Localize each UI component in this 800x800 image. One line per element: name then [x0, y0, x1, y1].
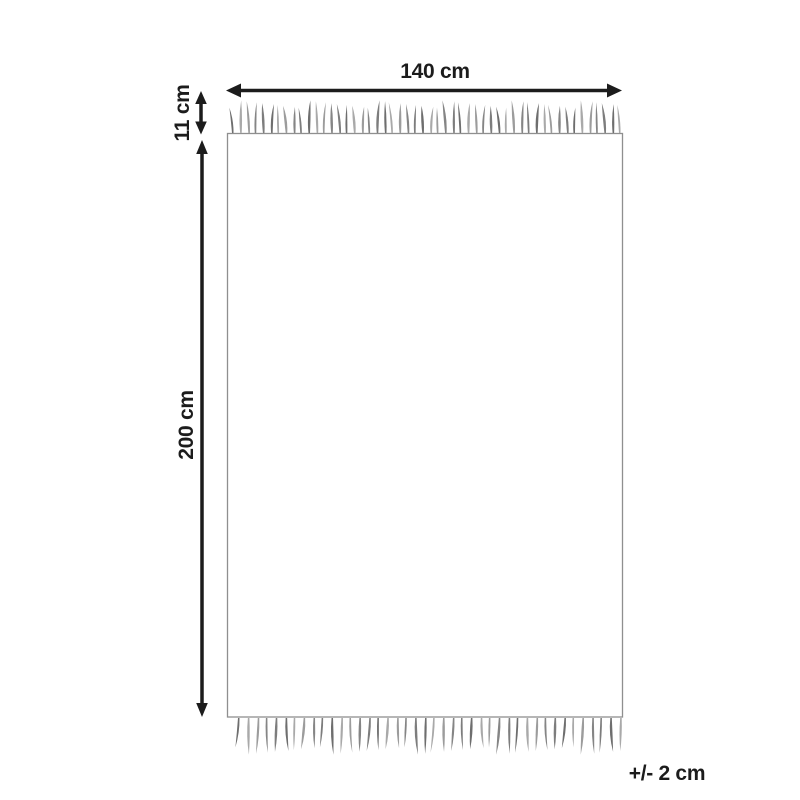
- tassel-strand: [431, 718, 435, 753]
- tolerance-label: +/- 2 cm: [611, 762, 723, 786]
- tassel-strand: [458, 102, 461, 133]
- tassel-strand: [415, 718, 418, 755]
- tassel-strand: [349, 718, 352, 753]
- tassel-strand: [581, 718, 584, 755]
- tassel-strand: [536, 718, 539, 751]
- tassel-strand: [521, 101, 523, 133]
- tassel-strand: [404, 718, 406, 747]
- tassel-strand: [247, 718, 250, 755]
- top-fringe: [229, 100, 620, 133]
- fringe-dimension-label: 11 cm: [171, 85, 195, 142]
- tassel-strand: [589, 101, 592, 133]
- tassel-strand: [308, 100, 311, 133]
- tassel-strand: [527, 102, 529, 133]
- tassel-strand: [451, 718, 454, 751]
- tassel-strand: [612, 104, 614, 133]
- tassel-strand: [461, 718, 463, 750]
- tassel-strand: [367, 718, 371, 751]
- tassel-strand: [424, 718, 426, 754]
- tassel-strand: [368, 108, 370, 133]
- tassel-strand: [565, 107, 568, 133]
- arrowhead-down-icon: [195, 122, 207, 135]
- tassel-strand: [397, 718, 399, 748]
- tassel-strand: [515, 718, 518, 753]
- tassel-strand: [283, 106, 287, 133]
- tassel-strand: [467, 103, 470, 133]
- tassel-strand: [235, 718, 239, 747]
- tassel-strand: [340, 718, 343, 754]
- tassel-strand: [496, 718, 500, 755]
- tassel-strand: [256, 718, 259, 754]
- arrowhead-right-icon: [607, 84, 622, 98]
- tassel-strand: [337, 104, 341, 133]
- tassel-strand: [399, 103, 402, 133]
- tassel-strand: [320, 718, 323, 747]
- tassel-strand: [421, 106, 424, 133]
- tassel-strand: [475, 104, 478, 133]
- rug-body: [228, 134, 623, 718]
- tassel-strand: [436, 108, 438, 133]
- tassel-strand: [386, 718, 389, 749]
- tassel-strand: [482, 105, 485, 133]
- tassel-strand: [293, 107, 295, 133]
- tassel-strand: [389, 102, 393, 133]
- tassel-strand: [316, 101, 319, 133]
- tassel-strand: [362, 107, 364, 133]
- tassel-strand: [526, 718, 529, 752]
- tassel-strand: [562, 718, 566, 748]
- tassel-strand: [442, 718, 445, 752]
- tassel-strand: [323, 102, 326, 133]
- tassel-strand: [406, 104, 409, 133]
- tassel-strand: [275, 718, 278, 752]
- arrowhead-up-icon: [196, 140, 208, 154]
- tassel-strand: [544, 718, 547, 750]
- arrowhead-down-icon: [196, 703, 208, 717]
- tassel-strand: [508, 718, 510, 754]
- tassel-strand: [558, 106, 561, 133]
- tassel-strand: [254, 102, 256, 133]
- tassel-strand: [345, 105, 347, 133]
- tassel-strand: [480, 718, 483, 748]
- tassel-strand: [247, 101, 250, 133]
- tassel-strand: [430, 107, 433, 133]
- tassel-strand: [581, 100, 584, 133]
- tassel-strand: [470, 718, 473, 749]
- fringe-dimension-arrow: [195, 91, 207, 135]
- tassel-strand: [377, 718, 379, 750]
- width-dimension-label: 140 cm: [355, 60, 515, 84]
- tassel-strand: [262, 103, 265, 133]
- tassel-strand: [301, 718, 305, 749]
- tassel-strand: [505, 108, 507, 133]
- tassel-strand: [596, 102, 598, 133]
- tassel-strand: [271, 104, 274, 133]
- arrowhead-up-icon: [195, 91, 207, 104]
- tassel-strand: [544, 104, 546, 133]
- tassel-strand: [496, 107, 500, 133]
- tassel-strand: [554, 718, 557, 749]
- tassel-strand: [600, 718, 602, 753]
- tassel-strand: [548, 105, 552, 133]
- tassel-strand: [331, 718, 334, 755]
- length-dimension-label: 200 cm: [175, 390, 199, 459]
- tassel-strand: [602, 103, 606, 133]
- rug-dimension-diagram: 140 cm 11 cm 200 cm +/- 2 cm: [0, 0, 800, 800]
- tassel-strand: [229, 108, 233, 133]
- tassel-strand: [453, 101, 455, 133]
- tassel-strand: [610, 718, 613, 752]
- tassel-strand: [572, 718, 574, 747]
- tassel-strand: [617, 105, 620, 133]
- tassel-strand: [414, 105, 416, 133]
- tassel-strand: [359, 718, 362, 752]
- tassel-strand: [239, 100, 242, 133]
- width-dimension-arrow: [226, 84, 622, 98]
- tassel-strand: [592, 718, 594, 754]
- diagram-graphics: [0, 0, 800, 800]
- tassel-strand: [313, 718, 315, 748]
- bottom-fringe: [235, 718, 621, 755]
- tassel-strand: [277, 105, 279, 133]
- tassel-strand: [330, 103, 333, 133]
- tassel-strand: [285, 718, 288, 751]
- tassel-strand: [488, 718, 490, 747]
- tassel-strand: [619, 718, 621, 751]
- tassel-strand: [266, 718, 268, 753]
- tassel-strand: [573, 108, 575, 133]
- tassel-strand: [490, 106, 493, 133]
- tassel-strand: [536, 103, 539, 133]
- tassel-strand: [376, 100, 379, 133]
- tassel-strand: [352, 106, 355, 133]
- tassel-strand: [512, 100, 515, 133]
- tassel-strand: [442, 100, 446, 133]
- tassel-strand: [293, 718, 295, 750]
- tassel-strand: [384, 101, 386, 133]
- arrowhead-left-icon: [226, 84, 241, 98]
- tassel-strand: [299, 108, 302, 133]
